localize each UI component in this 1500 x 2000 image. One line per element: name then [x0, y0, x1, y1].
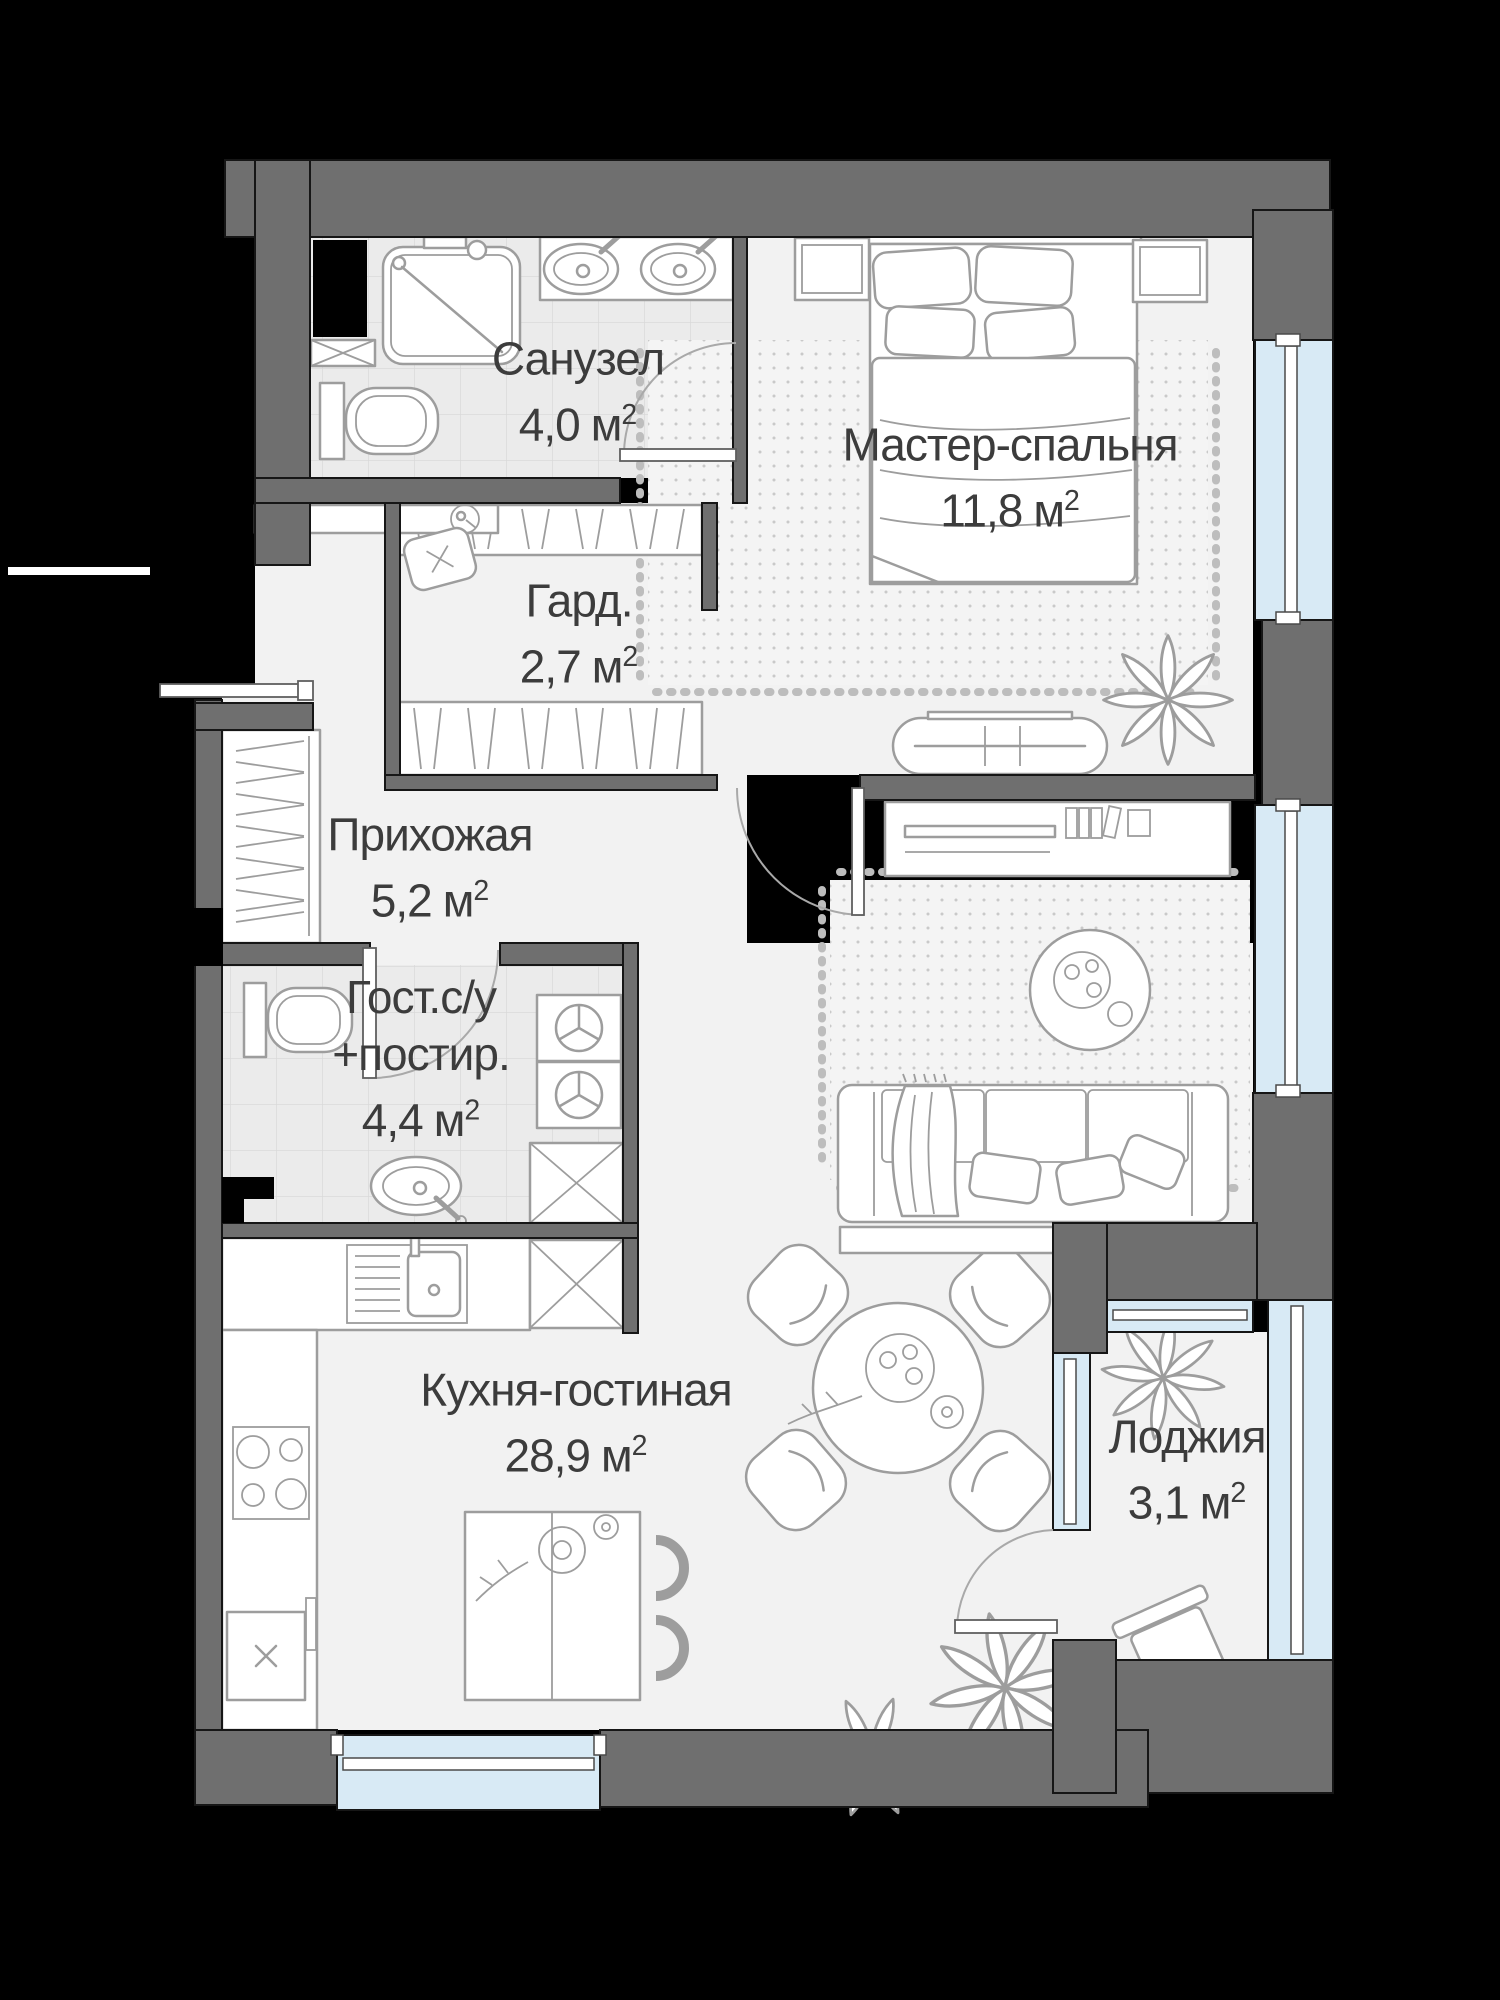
coffee-table — [1030, 930, 1150, 1050]
room-name: Кухня-гостиная — [420, 1361, 731, 1418]
room-name-line2: +постир. — [332, 1026, 509, 1083]
laundry-cabinet — [530, 1143, 623, 1223]
wardrobe-rail-bottom — [398, 702, 702, 775]
media-bench — [893, 712, 1107, 774]
kitchen-counter — [222, 1238, 530, 1330]
bedroom-plant — [1104, 636, 1233, 765]
label-kitchen-living: Кухня-гостиная 28,9м2 — [420, 1361, 731, 1484]
room-name: Гост.с/у — [332, 969, 509, 1026]
label-hallway: Прихожая 5,2м2 — [327, 806, 532, 929]
room-area: 4,4м2 — [332, 1083, 509, 1149]
double-sink-counter — [540, 236, 733, 300]
label-bathroom: Санузел 4,0м2 — [492, 330, 664, 453]
kitchen-island — [465, 1512, 640, 1700]
room-name: Прихожая — [327, 806, 532, 863]
label-wardrobe: Гард. 2,7м2 — [520, 572, 638, 695]
sofa — [838, 1074, 1228, 1222]
living-window — [1255, 799, 1333, 1097]
loggia-left-glazing — [1053, 1353, 1090, 1530]
floor-plan-page: Санузел 4,0м2 Мастер-спальня 11,8м2 Гард… — [0, 0, 1500, 2000]
nightstand-left — [795, 238, 869, 300]
wall-niche — [170, 908, 223, 966]
room-area: 2,7м2 — [520, 629, 638, 695]
adjacent-wall-line — [8, 567, 150, 575]
washer-dryer-stack — [537, 995, 621, 1128]
room-area: 4,0м2 — [492, 387, 664, 453]
tv-console — [885, 802, 1230, 876]
vent-box — [311, 340, 375, 366]
label-loggia: Лоджия 3,1м2 — [1109, 1408, 1266, 1531]
room-area: 3,1м2 — [1109, 1465, 1266, 1531]
sofa-console — [840, 1227, 1055, 1253]
loggia-right-glazing — [1268, 1300, 1333, 1660]
ventilation-shaft — [313, 240, 367, 337]
room-name: Лоджия — [1109, 1408, 1266, 1465]
nightstand-right — [1133, 240, 1207, 302]
room-area: 11,8м2 — [842, 473, 1177, 539]
label-guest-bathroom: Гост.с/у +постир. 4,4м2 — [332, 969, 509, 1149]
toilet — [320, 383, 438, 459]
hallway-closet — [222, 730, 320, 943]
kitchen-left-counter — [222, 1330, 317, 1730]
room-name: Санузел — [492, 330, 664, 387]
floor-plan-canvas — [0, 0, 1500, 2000]
kitchen-window — [331, 1735, 606, 1810]
bedroom-window — [1255, 334, 1333, 624]
loggia-top-glazing — [1107, 1300, 1253, 1332]
room-name: Гард. — [520, 572, 638, 629]
label-master-bedroom: Мастер-спальня 11,8м2 — [842, 416, 1177, 539]
room-area: 5,2м2 — [327, 863, 532, 929]
room-area: 28,9м2 — [420, 1418, 731, 1484]
tall-cabinet — [530, 1240, 623, 1328]
room-name: Мастер-спальня — [842, 416, 1177, 473]
